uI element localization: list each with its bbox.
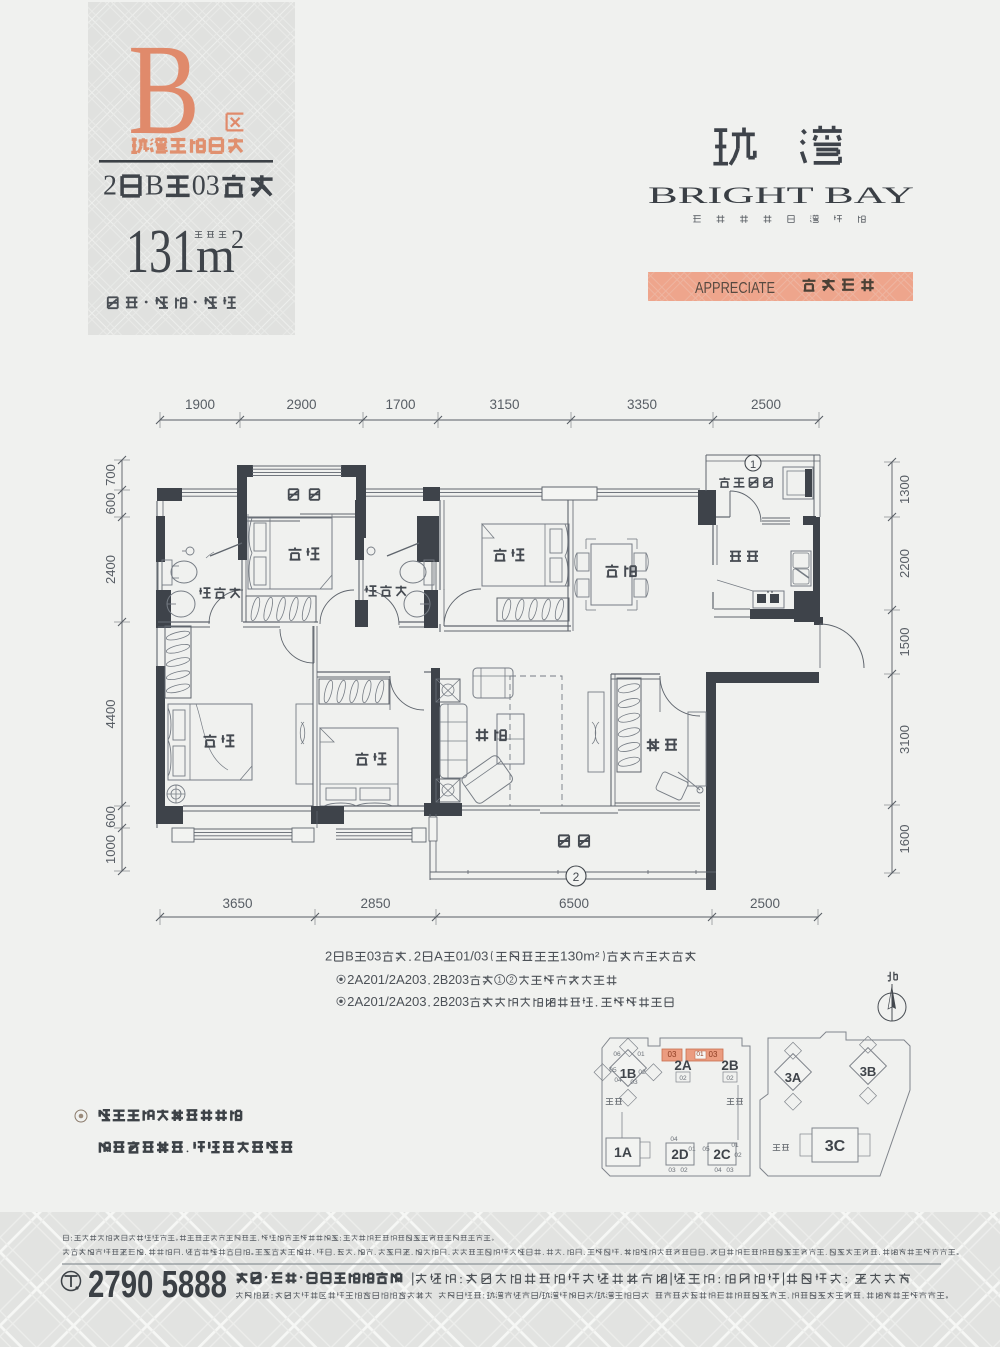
svg-text:01: 01: [731, 1142, 739, 1149]
svg-text:B: B: [145, 170, 164, 201]
svg-text:03: 03: [367, 948, 382, 963]
svg-text:1500: 1500: [897, 628, 912, 657]
svg-text:1700: 1700: [385, 397, 415, 412]
svg-text:1600: 1600: [897, 825, 912, 854]
svg-text:3100: 3100: [897, 725, 912, 754]
svg-text:APPRECIATE: APPRECIATE: [695, 280, 775, 297]
svg-text:01: 01: [688, 1146, 696, 1153]
svg-text:3B: 3B: [860, 1064, 877, 1079]
svg-text:04: 04: [614, 1077, 622, 1084]
svg-text:3A: 3A: [785, 1070, 802, 1085]
svg-text:3650: 3650: [222, 896, 252, 911]
svg-text:2790 5888: 2790 5888: [88, 1264, 227, 1306]
svg-text:|: |: [669, 1271, 673, 1286]
svg-text:131: 131: [126, 218, 195, 286]
svg-text:600: 600: [103, 806, 118, 828]
svg-text:2400: 2400: [103, 555, 118, 584]
svg-text:6500: 6500: [559, 896, 589, 911]
svg-text:05: 05: [609, 1067, 617, 1074]
svg-text:01/03: 01/03: [456, 948, 489, 963]
svg-text:01: 01: [637, 1051, 645, 1058]
svg-text:2500: 2500: [750, 896, 780, 911]
svg-text:2: 2: [325, 948, 332, 963]
svg-text:2200: 2200: [897, 549, 912, 578]
svg-text:2900: 2900: [286, 397, 316, 412]
svg-text:700: 700: [103, 464, 118, 486]
svg-text:2B: 2B: [721, 1058, 739, 1073]
svg-text:02: 02: [638, 1069, 646, 1076]
svg-text:02: 02: [679, 1075, 687, 1082]
svg-text:2: 2: [103, 170, 117, 201]
svg-text:600: 600: [103, 493, 118, 515]
svg-text:04: 04: [670, 1136, 678, 1143]
svg-text:02: 02: [726, 1075, 734, 1082]
svg-text:2D: 2D: [671, 1147, 689, 1162]
svg-text:02: 02: [734, 1152, 742, 1159]
svg-text:03: 03: [709, 1050, 718, 1059]
svg-text:1300: 1300: [897, 475, 912, 504]
svg-text:04: 04: [714, 1167, 722, 1174]
svg-text:1A: 1A: [614, 1144, 632, 1160]
svg-text:A: A: [434, 948, 443, 963]
svg-text:2: 2: [509, 976, 513, 985]
svg-text:|: |: [411, 1271, 415, 1286]
svg-text:2B203: 2B203: [433, 995, 469, 1009]
svg-text:2A: 2A: [674, 1058, 692, 1073]
svg-text:4400: 4400: [103, 700, 118, 729]
svg-text:2: 2: [414, 948, 421, 963]
svg-text:|: |: [782, 1271, 786, 1286]
svg-text:2500: 2500: [751, 397, 781, 412]
svg-text:2: 2: [573, 870, 580, 884]
svg-text:1: 1: [750, 459, 756, 471]
svg-text:3150: 3150: [489, 397, 519, 412]
svg-text:3C: 3C: [825, 1138, 846, 1155]
svg-text:m: m: [196, 227, 235, 283]
svg-text:1: 1: [498, 976, 502, 985]
svg-text:2A201/2A203: 2A201/2A203: [347, 973, 426, 987]
svg-text:1000: 1000: [103, 835, 118, 864]
svg-text:02: 02: [680, 1167, 688, 1174]
svg-text:2B203: 2B203: [433, 973, 469, 987]
svg-text:2850: 2850: [360, 896, 390, 911]
svg-text:2C: 2C: [713, 1147, 731, 1162]
svg-text:03: 03: [668, 1167, 676, 1174]
svg-text:1900: 1900: [185, 397, 215, 412]
svg-text:05: 05: [702, 1146, 710, 1153]
svg-text:03: 03: [630, 1079, 638, 1086]
svg-text:03: 03: [726, 1167, 734, 1174]
svg-text:B: B: [345, 948, 354, 963]
svg-text:BRIGHT BAY: BRIGHT BAY: [648, 183, 915, 208]
svg-text:130m²: 130m²: [560, 948, 600, 963]
svg-text:3350: 3350: [627, 397, 657, 412]
svg-text:01: 01: [696, 1051, 704, 1058]
svg-text:2A201/2A203: 2A201/2A203: [347, 995, 426, 1009]
svg-text:2: 2: [231, 225, 244, 254]
svg-text:03: 03: [192, 170, 220, 201]
svg-text:06: 06: [613, 1051, 621, 1058]
